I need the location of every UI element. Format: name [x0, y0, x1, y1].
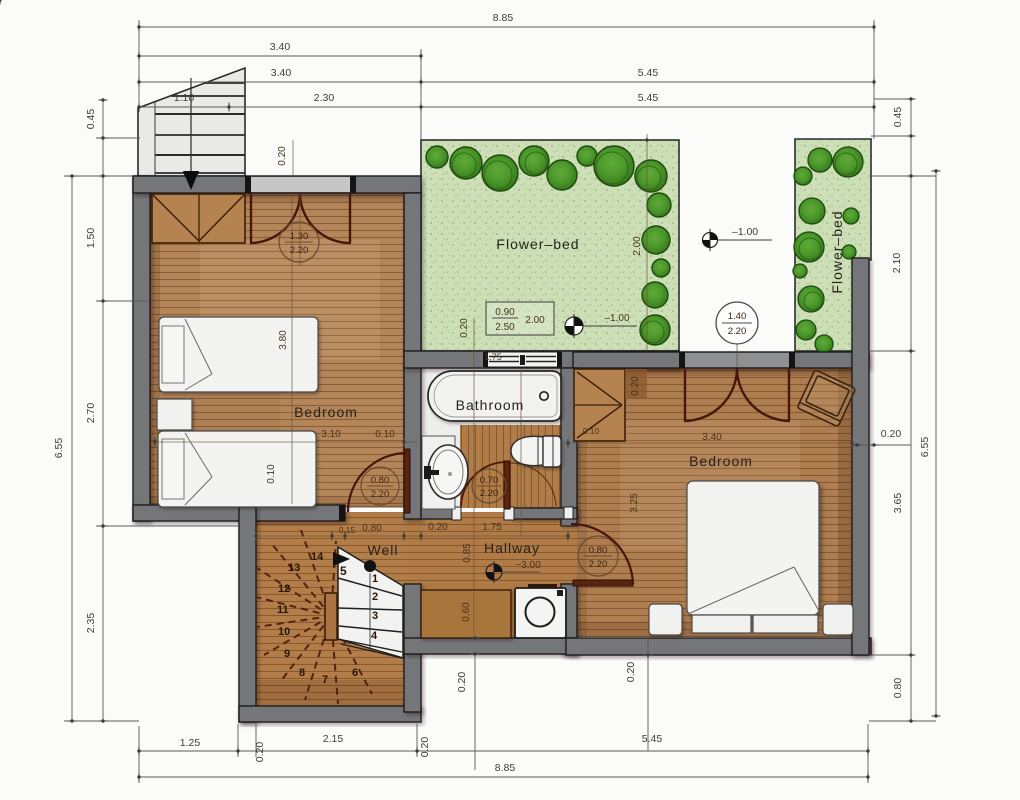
svg-text:~3.00: ~3.00 — [515, 560, 541, 571]
svg-text:0.90: 0.90 — [495, 307, 515, 318]
svg-text:1.75: 1.75 — [482, 522, 502, 533]
svg-text:1: 1 — [372, 573, 378, 585]
svg-text:13: 13 — [288, 562, 300, 574]
svg-text:9: 9 — [284, 648, 290, 660]
svg-text:0.45: 0.45 — [85, 109, 97, 130]
svg-text:3.10: 3.10 — [321, 429, 341, 440]
svg-text:14: 14 — [311, 551, 324, 563]
svg-text:5.45: 5.45 — [638, 92, 659, 104]
svg-text:0.80: 0.80 — [371, 475, 390, 486]
svg-text:2.15: 2.15 — [323, 733, 344, 745]
svg-text:Bedroom: Bedroom — [689, 453, 753, 469]
svg-text:2: 2 — [372, 591, 378, 603]
svg-text:0.80: 0.80 — [362, 523, 382, 534]
svg-text:2.20: 2.20 — [371, 489, 390, 500]
svg-text:5: 5 — [340, 564, 347, 578]
svg-text:1.50: 1.50 — [85, 228, 97, 249]
svg-text:2.70: 2.70 — [85, 403, 97, 424]
svg-text:0.20: 0.20 — [881, 428, 902, 440]
svg-text:Bedroom: Bedroom — [294, 404, 358, 420]
svg-text:0.20: 0.20 — [419, 737, 431, 758]
svg-text:Hallway: Hallway — [484, 540, 540, 556]
svg-text:Flower–bed: Flower–bed — [829, 210, 845, 293]
svg-text:0.20: 0.20 — [625, 662, 637, 683]
svg-text:1.30: 1.30 — [290, 231, 309, 242]
svg-text:7: 7 — [322, 674, 328, 686]
svg-text:6: 6 — [352, 667, 358, 679]
svg-text:0.15: 0.15 — [339, 525, 356, 535]
svg-text:0.20: 0.20 — [428, 522, 448, 533]
svg-text:6.55: 6.55 — [53, 438, 65, 459]
svg-text:2.10: 2.10 — [891, 253, 903, 274]
svg-text:Well: Well — [368, 542, 399, 558]
svg-text:4: 4 — [371, 630, 378, 642]
svg-text:0.20: 0.20 — [459, 318, 470, 338]
svg-text:0.10: 0.10 — [583, 426, 600, 436]
svg-text:3.40: 3.40 — [270, 41, 291, 53]
svg-text:–1.00: –1.00 — [732, 226, 758, 238]
svg-text:3.40: 3.40 — [271, 67, 292, 79]
svg-text:8.85: 8.85 — [493, 12, 514, 24]
svg-text:1.40: 1.40 — [728, 311, 747, 322]
svg-text:3.25: 3.25 — [629, 493, 640, 513]
svg-text:0.80: 0.80 — [892, 678, 904, 699]
svg-text:5.45: 5.45 — [642, 733, 663, 745]
svg-text:2.20: 2.20 — [480, 488, 499, 499]
svg-text:0.45: 0.45 — [892, 107, 904, 128]
svg-text:2.00: 2.00 — [632, 236, 643, 256]
svg-text:3.80: 3.80 — [278, 330, 289, 350]
svg-text:0.20: 0.20 — [630, 376, 641, 396]
svg-text:1.75: 1.75 — [484, 352, 502, 362]
svg-text:10: 10 — [278, 626, 290, 638]
svg-text:0.10: 0.10 — [266, 464, 277, 484]
svg-text:2.20: 2.20 — [589, 559, 608, 570]
svg-text:3.40: 3.40 — [702, 432, 722, 443]
svg-text:0.80: 0.80 — [589, 545, 608, 556]
svg-text:2.20: 2.20 — [728, 326, 747, 337]
svg-text:2.00: 2.00 — [525, 315, 545, 326]
svg-text:2.20: 2.20 — [290, 245, 309, 256]
svg-text:1.25: 1.25 — [180, 737, 201, 749]
svg-text:11: 11 — [277, 604, 289, 616]
svg-text:3: 3 — [372, 610, 378, 622]
svg-text:3.65: 3.65 — [892, 493, 904, 514]
svg-text:2.30: 2.30 — [314, 92, 335, 104]
svg-text:0.70: 0.70 — [480, 475, 499, 486]
svg-text:2.50: 2.50 — [495, 322, 515, 333]
svg-text:8: 8 — [299, 667, 305, 679]
svg-text:0.60: 0.60 — [461, 602, 472, 622]
svg-text:–1.00: –1.00 — [604, 313, 629, 324]
svg-text:12: 12 — [278, 583, 290, 595]
svg-text:1.10: 1.10 — [174, 92, 195, 104]
svg-text:Bathroom: Bathroom — [456, 397, 525, 413]
svg-text:0.20: 0.20 — [277, 146, 288, 166]
svg-text:2.35: 2.35 — [85, 613, 97, 634]
svg-text:0.20: 0.20 — [254, 742, 266, 763]
svg-text:6.55: 6.55 — [919, 437, 931, 458]
svg-text:0.10: 0.10 — [375, 429, 395, 440]
svg-text:8.85: 8.85 — [495, 762, 516, 774]
svg-text:5.45: 5.45 — [638, 67, 659, 79]
svg-text:0.85: 0.85 — [462, 543, 473, 563]
svg-text:0.20: 0.20 — [456, 672, 468, 693]
svg-text:Flower–bed: Flower–bed — [496, 236, 579, 252]
